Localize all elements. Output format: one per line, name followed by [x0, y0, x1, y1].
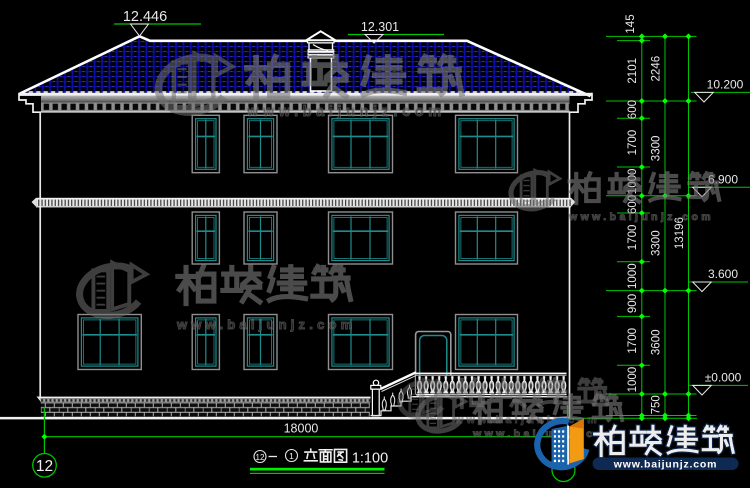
svg-text:3300: 3300	[651, 136, 663, 162]
svg-text:1700: 1700	[627, 225, 639, 251]
svg-text:12: 12	[36, 458, 53, 475]
svg-text:18000: 18000	[284, 422, 319, 436]
svg-text:12.446: 12.446	[123, 9, 167, 25]
svg-text:3.600: 3.600	[708, 267, 738, 281]
svg-text:2101: 2101	[627, 58, 639, 84]
svg-text:1000: 1000	[627, 367, 639, 393]
svg-text:3600: 3600	[651, 330, 663, 356]
svg-text:900: 900	[627, 294, 639, 313]
svg-text:1:100: 1:100	[352, 451, 388, 467]
svg-text:1700: 1700	[627, 328, 639, 354]
svg-text:12: 12	[256, 453, 265, 462]
svg-text:145: 145	[625, 14, 637, 33]
svg-text:2246: 2246	[651, 56, 663, 82]
svg-text:±0.000: ±0.000	[705, 371, 742, 385]
svg-text:12.301: 12.301	[361, 20, 399, 34]
svg-text:www.baijunjz.com: www.baijunjz.com	[613, 458, 717, 470]
svg-text:600: 600	[627, 100, 639, 119]
svg-text:www.baijunjz.com: www.baijunjz.com	[246, 104, 446, 120]
svg-text:www.baijunjz.com: www.baijunjz.com	[176, 317, 356, 332]
svg-text:1700: 1700	[627, 130, 639, 156]
svg-text:3300: 3300	[651, 230, 663, 256]
svg-text:1: 1	[289, 451, 294, 461]
svg-text:750: 750	[651, 395, 663, 414]
svg-text:1000: 1000	[627, 263, 639, 289]
svg-text:10.200: 10.200	[707, 78, 744, 92]
svg-text:www.baijunjz.com: www.baijunjz.com	[568, 211, 714, 223]
